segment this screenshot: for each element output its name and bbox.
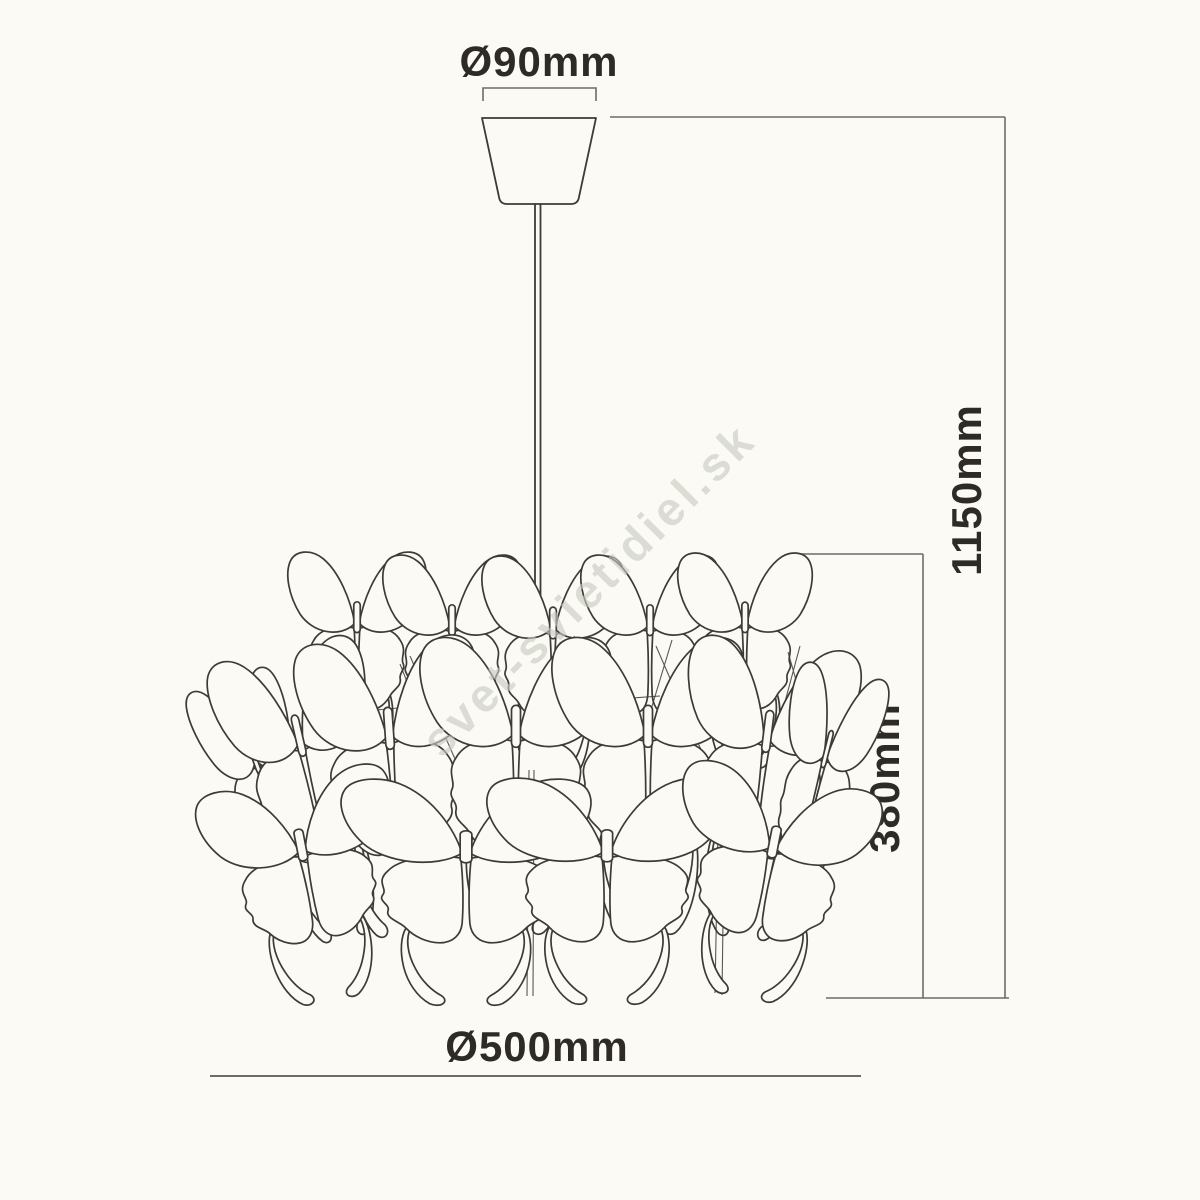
bracket-line <box>483 88 596 101</box>
ceiling-canopy <box>482 118 596 204</box>
dim-shade-diameter: Ø500mm <box>210 1023 861 1076</box>
pendant-light-dimension-drawing: Ø90mm 1150mm 380mm <box>0 0 1200 1200</box>
label-canopy-diameter: Ø90mm <box>459 38 618 85</box>
diagram-canvas: Ø90mm 1150mm 380mm <box>0 0 1200 1200</box>
label-overall-height: 1150mm <box>943 404 990 576</box>
label-shade-diameter: Ø500mm <box>445 1023 628 1070</box>
dim-canopy-diameter: Ø90mm <box>459 38 618 101</box>
suspension-cord <box>535 204 541 612</box>
